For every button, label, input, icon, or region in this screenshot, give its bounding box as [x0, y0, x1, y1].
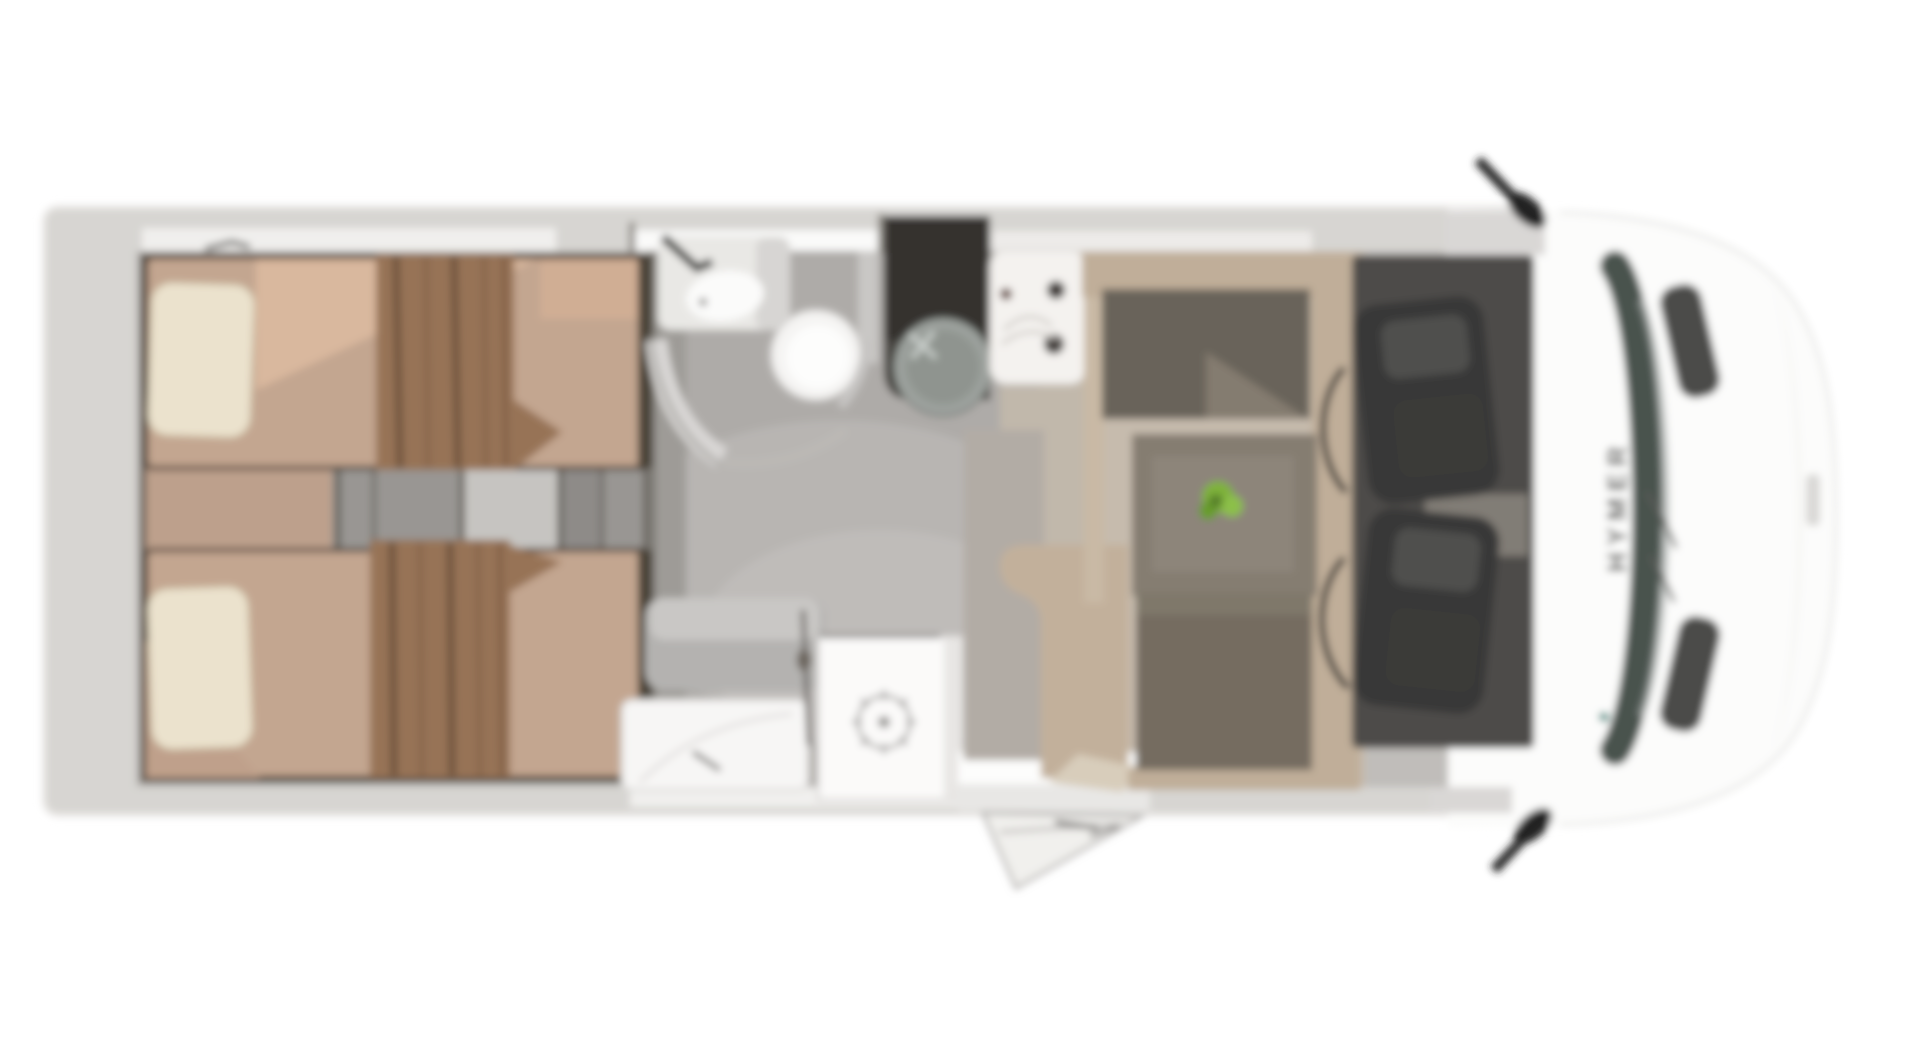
svg-text:HYMER: HYMER: [1602, 439, 1632, 572]
